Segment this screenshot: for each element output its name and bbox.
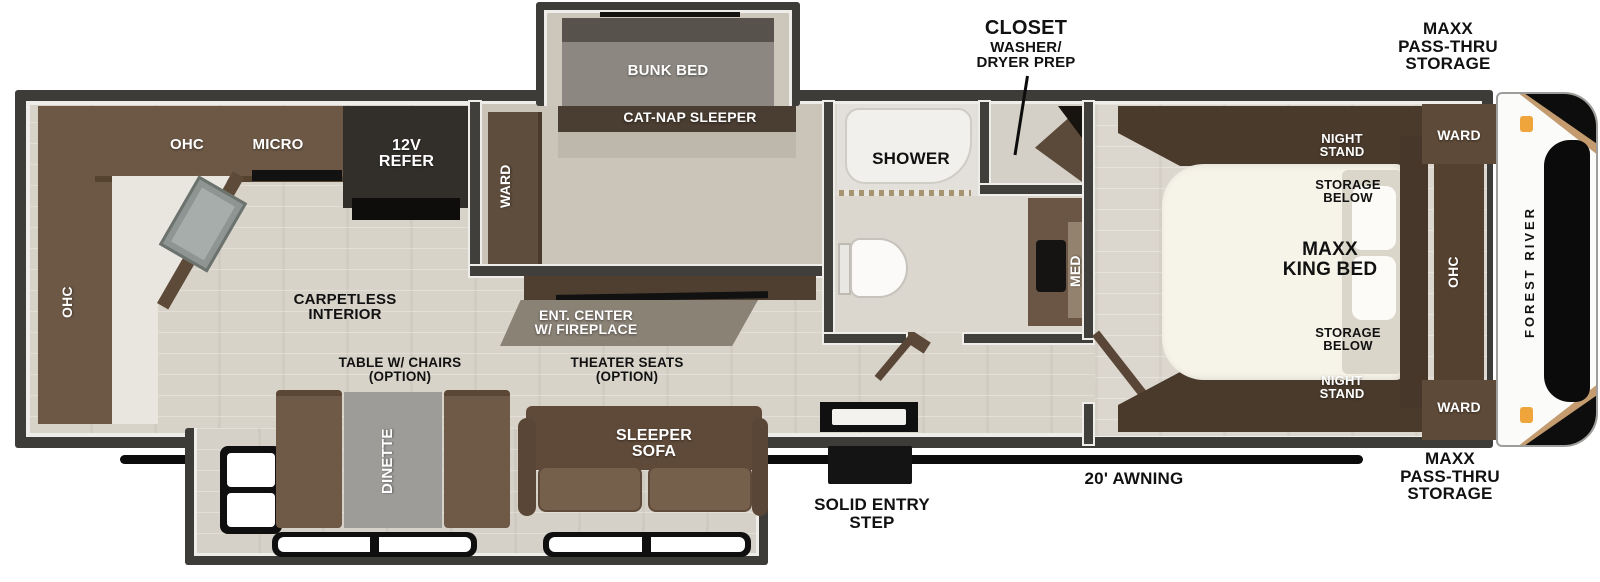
- cap-marker-light-top: [1520, 116, 1533, 132]
- bunk-bed-pillow-band: [562, 18, 774, 42]
- bath-bottom-wall-left: [822, 332, 908, 345]
- bedroom-wall: [1082, 100, 1095, 340]
- ohc-left-label: OHC: [60, 262, 86, 342]
- sleeper-sofa-label: SLEEPER SOFA: [584, 428, 724, 461]
- slide-window-right-mullion: [642, 535, 651, 554]
- table-option-label: TABLE W/ CHAIRS (OPTION): [330, 356, 470, 384]
- brand-logo: FOREST RIVER: [1522, 134, 1542, 409]
- ohc-top-label: OHC: [147, 137, 227, 152]
- cap-marker-light-bottom: [1520, 407, 1533, 423]
- ward-top-label: WARD: [1422, 128, 1496, 142]
- sofa-armrest-left: [518, 418, 536, 516]
- sofa-armrest-right: [752, 418, 768, 516]
- ward-bottom-label: WARD: [1422, 400, 1496, 414]
- shower-label: SHOWER: [845, 150, 977, 168]
- cat-nap-label: CAT-NAP SLEEPER: [600, 110, 780, 124]
- bath-bottom-wall-right: [962, 332, 1095, 345]
- bedroom-wall-stub: [1082, 402, 1095, 446]
- solid-entry-step-label: SOLID ENTRY STEP: [792, 496, 952, 531]
- night-stand-bottom-label: NIGHT STAND: [1300, 374, 1384, 401]
- storage-below-top-label: STORAGE BELOW: [1306, 178, 1390, 205]
- slide-end-window: [220, 446, 282, 534]
- refrigerator-label: 12V REFER: [343, 138, 470, 171]
- carpetless-interior-label: CARPETLESS INTERIOR: [275, 292, 415, 323]
- entry-step-well-tread: [832, 409, 906, 425]
- solid-entry-step: [828, 446, 912, 484]
- bedroom-ohc-label: OHC: [1446, 236, 1472, 308]
- dinette-bench-left: [276, 390, 342, 528]
- sofa-cushion-left: [538, 466, 642, 512]
- bath-left-wall: [822, 100, 835, 345]
- toilet-bowl: [850, 238, 908, 298]
- entry-step-well: [820, 402, 918, 432]
- microwave-label: MICRO: [238, 137, 318, 152]
- slide-window-left: [272, 532, 477, 557]
- night-stand-top-label: NIGHT STAND: [1300, 132, 1384, 159]
- closet-left-wall: [978, 100, 991, 196]
- closet-title-label: CLOSET: [966, 18, 1086, 39]
- rv-floorplan: OHC MICRO OHC 12V REFER CARPETLESS INTER…: [0, 0, 1600, 582]
- theater-option-label: THEATER SEATS (OPTION): [557, 356, 697, 384]
- awning-label: 20' AWNING: [1054, 470, 1214, 488]
- pass-thru-bottom-label: MAXX PASS-THRU STORAGE: [1380, 450, 1520, 503]
- cooktop-strip: [252, 170, 342, 181]
- slide-window-right: [543, 532, 751, 557]
- bunk-bed-headrail: [600, 12, 740, 17]
- refrigerator: 12V REFER: [343, 106, 470, 208]
- ent-center-label: ENT. CENTER W/ FIREPLACE: [496, 308, 676, 337]
- storage-below-bottom-label: STORAGE BELOW: [1306, 326, 1390, 353]
- refrigerator-door: [352, 198, 460, 220]
- bunk-room-left-wall: [468, 100, 482, 278]
- dinette-bench-right: [444, 390, 510, 528]
- cap-window-graphic: [1544, 140, 1590, 402]
- bunk-wardrobe-label: WARD: [498, 146, 524, 226]
- slide-end-window-pane-top: [227, 453, 275, 487]
- sofa-cushion-right: [648, 466, 752, 512]
- headboard: [1400, 136, 1428, 408]
- closet-sub-label: WASHER/ DRYER PREP: [966, 40, 1086, 71]
- front-cap: FOREST RIVER: [1496, 92, 1598, 447]
- pass-thru-top-label: MAXX PASS-THRU STORAGE: [1378, 20, 1518, 73]
- shower-glass: [839, 190, 971, 196]
- vanity-sink: [1036, 240, 1066, 292]
- shower-pan: [845, 108, 972, 184]
- cat-nap-platform: [558, 132, 796, 158]
- dinette-label: DINETTE: [380, 418, 406, 504]
- king-bed-label: MAXX KING BED: [1262, 240, 1398, 279]
- bunk-bed-label: BUNK BED: [588, 63, 748, 78]
- slide-end-window-pane-bottom: [227, 493, 275, 527]
- slide-window-left-mullion: [370, 535, 379, 554]
- closet-bottom-wall: [978, 183, 1095, 196]
